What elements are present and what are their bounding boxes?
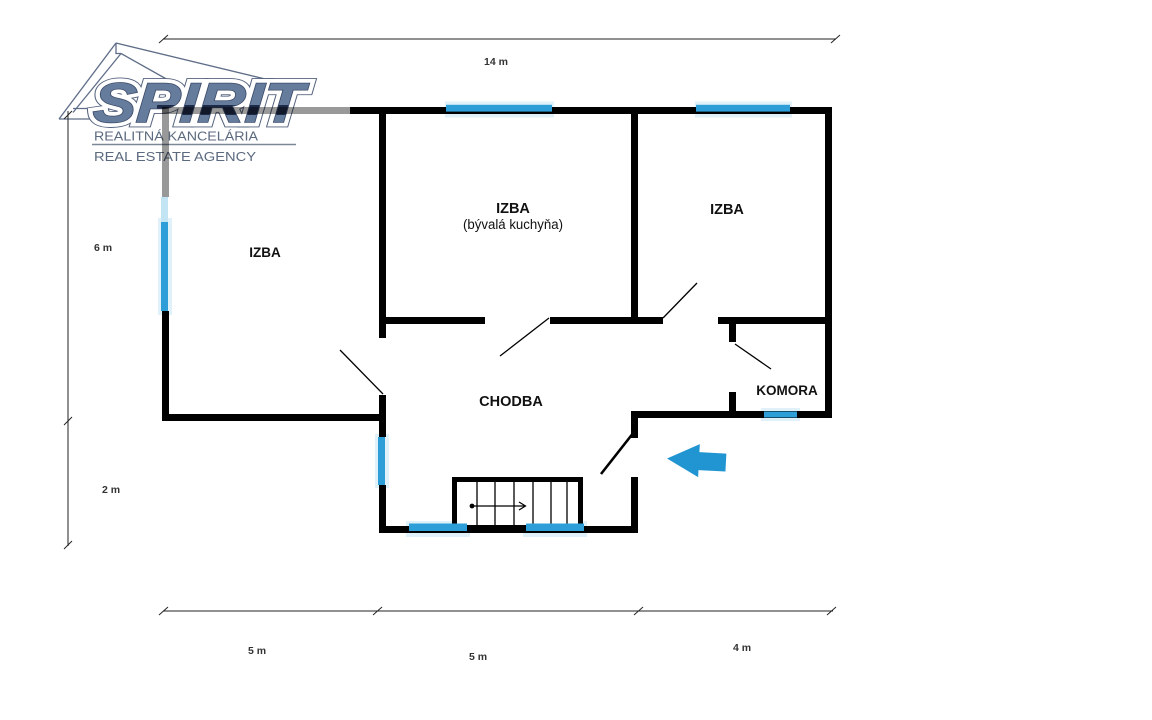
svg-text:REAL ESTATE AGENCY: REAL ESTATE AGENCY bbox=[94, 150, 257, 164]
svg-text:14 m: 14 m bbox=[484, 56, 508, 68]
svg-text:IZBA: IZBA bbox=[249, 245, 281, 260]
svg-text:IZBA: IZBA bbox=[710, 202, 744, 218]
svg-text:5 m: 5 m bbox=[248, 645, 266, 657]
svg-text:CHODBA: CHODBA bbox=[479, 394, 543, 410]
svg-text:2 m: 2 m bbox=[102, 484, 120, 496]
svg-text:IZBA: IZBA bbox=[496, 201, 530, 217]
svg-text:5 m: 5 m bbox=[469, 651, 487, 663]
svg-text:REALITNÁ KANCELÁRIA: REALITNÁ KANCELÁRIA bbox=[94, 129, 259, 144]
svg-text:KOMORA: KOMORA bbox=[756, 383, 818, 398]
svg-text:SPIRIT: SPIRIT bbox=[91, 71, 311, 134]
svg-text:4 m: 4 m bbox=[733, 642, 751, 654]
svg-text:(bývalá kuchyňa): (bývalá kuchyňa) bbox=[463, 217, 563, 232]
svg-text:6 m: 6 m bbox=[94, 242, 112, 254]
